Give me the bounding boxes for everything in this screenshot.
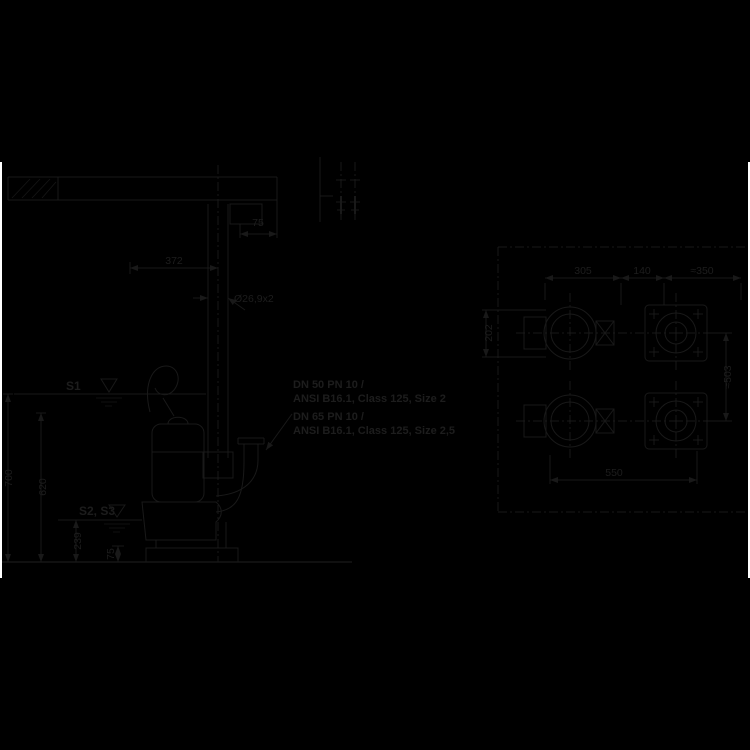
plan-view: 305 140 ≈350 202 ≈503 5 [482,247,750,512]
water-level-s2s3: S2, S3 [58,504,142,532]
drawing-canvas: 75 372 Ø26,9x2 S1 [0,0,750,750]
dim-depth-mid: 620 [37,478,49,496]
flange-note1-line2: ANSI B16.1, Class 125, Size 2 [293,393,446,405]
dim-plan-top-b: 140 [633,265,651,277]
dim-plan-top-c: ≈350 [690,265,713,277]
dim-plan-right: ≈503 [722,365,734,388]
dim-bracket-offset: 75 [252,217,264,229]
pump-side-view [142,398,264,562]
lifting-handle [168,417,188,424]
dim-rail-length: 372 [165,255,183,267]
flange-notes: DN 50 PN 10 / ANSI B16.1, Class 125, Siz… [266,379,455,450]
rail-symbol [350,162,360,220]
dim-rail-pipe: Ø26,9x2 [234,293,274,305]
dim-depth-stop: 239 [72,532,84,550]
rail-symbol [336,162,346,220]
ceiling-beam [8,177,277,200]
flange-note2-line2: ANSI B16.1, Class 125, Size 2,5 [293,425,455,437]
coupling-base [146,548,238,562]
pit-boundary [498,247,750,512]
flange-note1-line1: DN 50 PN 10 / [293,379,364,391]
pump-volute [142,502,221,540]
pump-plan-unit [516,293,718,373]
dim-floor-clearance: 75 [105,548,117,560]
dim-plan-top-a: 305 [574,265,592,277]
dim-depth-total: 700 [3,469,15,487]
pump-motor [152,424,204,502]
leader-line [266,414,292,450]
dim-plan-bottom: 550 [605,467,623,479]
pump-plan-unit [516,381,718,461]
cable-loop [148,366,179,412]
bracket-top-view [320,157,360,222]
page-edge-left [0,162,2,578]
s1-label: S1 [66,379,81,393]
dim-plan-left: 202 [483,324,495,342]
plan-bottom-dim [550,451,697,484]
depth-dimensions [3,394,124,562]
pump-installation-drawing: 75 372 Ø26,9x2 S1 [0,0,750,750]
flange-note2-line1: DN 65 PN 10 / [293,411,364,423]
plan-top-dims [545,278,741,305]
water-level-triangle [101,379,117,392]
